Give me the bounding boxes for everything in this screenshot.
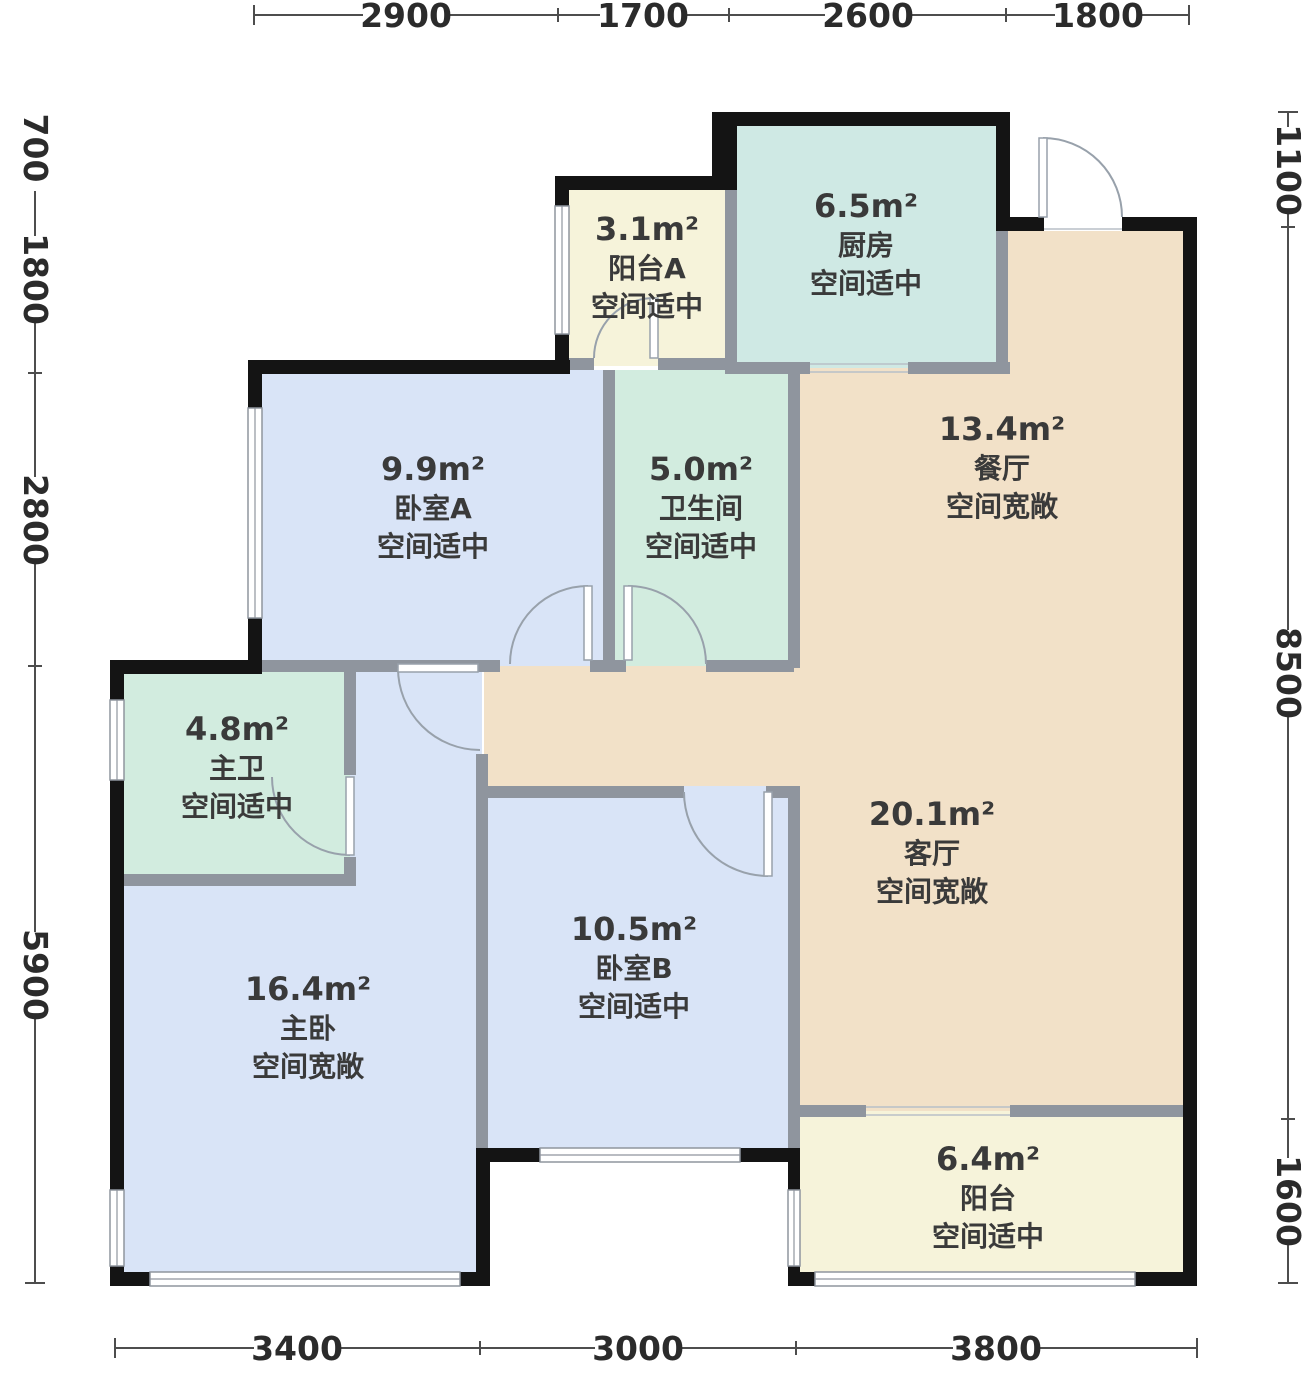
svg-text:4.8m²: 4.8m² <box>185 710 289 748</box>
svg-text:餐厅: 餐厅 <box>974 452 1030 485</box>
dim-left-2800: 2800 <box>16 474 55 566</box>
ruler-left: 700 1800 2800 5900 <box>16 105 55 1283</box>
svg-text:客厅: 客厅 <box>904 837 960 870</box>
dim-top-2600: 2600 <box>822 0 914 35</box>
svg-text:空间适中: 空间适中 <box>645 530 757 563</box>
window-balcony-bottom <box>815 1272 1135 1286</box>
window-master-bedroom-left <box>110 1190 124 1266</box>
dim-top-1700: 1700 <box>597 0 689 35</box>
svg-text:空间适中: 空间适中 <box>932 1220 1044 1253</box>
dim-bottom-3000: 3000 <box>592 1329 684 1368</box>
svg-text:9.9m²: 9.9m² <box>381 450 485 488</box>
ruler-right: 1100 8500 1600 <box>1269 112 1304 1283</box>
svg-text:主卧: 主卧 <box>280 1012 336 1045</box>
svg-text:阳台A: 阳台A <box>608 252 686 285</box>
svg-text:卧室B: 卧室B <box>595 952 672 985</box>
svg-text:空间适中: 空间适中 <box>578 990 690 1023</box>
svg-text:13.4m²: 13.4m² <box>939 410 1065 448</box>
svg-text:卫生间: 卫生间 <box>659 492 743 525</box>
svg-text:阳台: 阳台 <box>960 1182 1016 1215</box>
svg-text:16.4m²: 16.4m² <box>245 970 371 1008</box>
dim-bottom-3400: 3400 <box>251 1329 343 1368</box>
dim-top-2900: 2900 <box>360 0 452 35</box>
dim-left-1800: 1800 <box>16 233 55 325</box>
dim-right-8500: 8500 <box>1269 627 1304 719</box>
svg-text:空间宽敞: 空间宽敞 <box>946 490 1059 523</box>
window-balcony-a-left <box>555 206 569 334</box>
dim-top-1800: 1800 <box>1052 0 1144 35</box>
window-balcony-left <box>788 1190 800 1266</box>
svg-text:卧室A: 卧室A <box>394 492 472 525</box>
window-master-bath-left <box>110 700 124 780</box>
svg-text:20.1m²: 20.1m² <box>869 795 995 833</box>
svg-text:空间宽敞: 空间宽敞 <box>876 875 989 908</box>
window-bedroom-a-left <box>248 408 262 618</box>
dim-left-5900: 5900 <box>16 929 55 1021</box>
svg-text:10.5m²: 10.5m² <box>571 910 697 948</box>
ruler-bottom: 3400 3000 3800 <box>115 1329 1197 1368</box>
svg-text:3.1m²: 3.1m² <box>595 210 699 248</box>
window-master-bedroom-bottom <box>150 1272 460 1286</box>
label-bathroom: 5.0m² 卫生间 空间适中 <box>645 450 757 563</box>
dim-bottom-3800: 3800 <box>950 1329 1042 1368</box>
svg-text:空间适中: 空间适中 <box>377 530 489 563</box>
svg-text:6.5m²: 6.5m² <box>814 187 918 225</box>
dim-left-700: 700 <box>16 114 55 183</box>
floor-plan-canvas: 3.1m² 阳台A 空间适中 6.5m² 厨房 空间适中 13.4m² 餐厅 空… <box>0 0 1304 1400</box>
svg-text:空间宽敞: 空间宽敞 <box>252 1050 365 1083</box>
svg-text:主卫: 主卫 <box>209 752 265 785</box>
svg-text:空间适中: 空间适中 <box>810 267 922 300</box>
ruler-top: 2900 1700 2600 1800 <box>254 0 1189 35</box>
floor-plan-page: 3.1m² 阳台A 空间适中 6.5m² 厨房 空间适中 13.4m² 餐厅 空… <box>0 0 1304 1400</box>
svg-text:空间适中: 空间适中 <box>591 290 703 323</box>
svg-text:6.4m²: 6.4m² <box>936 1140 1040 1178</box>
svg-text:厨房: 厨房 <box>838 229 894 262</box>
dim-right-1600: 1600 <box>1269 1155 1304 1247</box>
entry-door <box>1039 138 1122 217</box>
svg-text:空间适中: 空间适中 <box>181 790 293 823</box>
dim-right-1100: 1100 <box>1269 124 1304 216</box>
window-bedroom-b-bottom <box>540 1148 740 1162</box>
svg-text:5.0m²: 5.0m² <box>649 450 753 488</box>
